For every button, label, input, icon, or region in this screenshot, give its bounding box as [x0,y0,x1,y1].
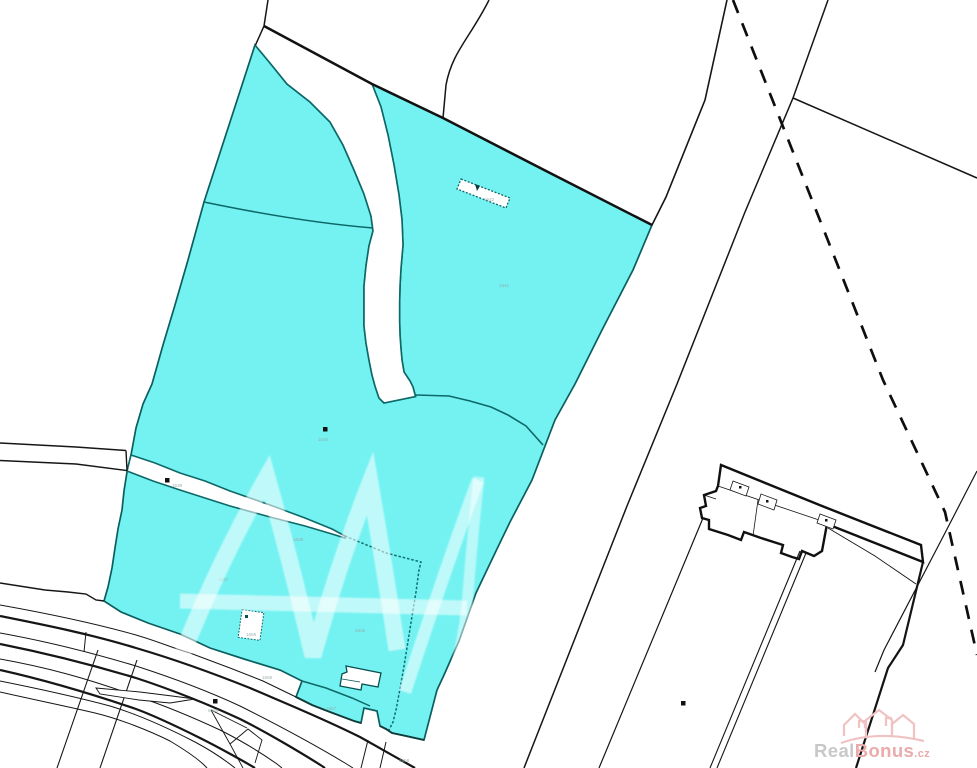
svg-text:1639: 1639 [172,483,183,488]
svg-text:1636: 1636 [355,628,366,633]
svg-text:1658: 1658 [399,758,410,763]
svg-text:1638: 1638 [293,537,304,542]
svg-text:RealBonus.cz: RealBonus.cz [814,740,930,761]
svg-text:1656: 1656 [262,675,273,680]
svg-text:1642: 1642 [484,197,495,202]
svg-text:1657: 1657 [326,706,337,711]
svg-text:5634: 5634 [208,708,219,713]
svg-text:1641: 1641 [499,283,510,288]
svg-text:1655: 1655 [246,632,257,637]
svg-text:1640: 1640 [318,437,329,442]
